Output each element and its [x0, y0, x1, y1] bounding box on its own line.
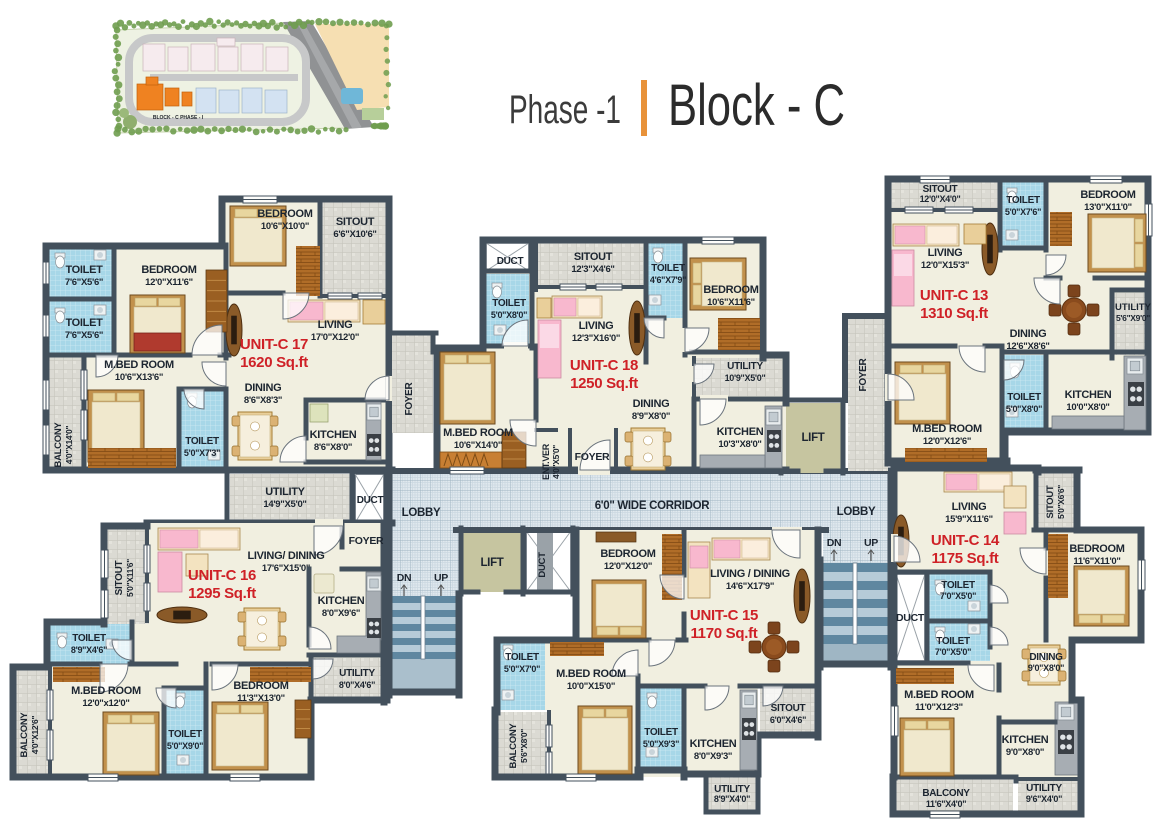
svg-text:M.BED ROOM: M.BED ROOM	[104, 359, 174, 371]
svg-text:11'3"X13'0": 11'3"X13'0"	[237, 693, 285, 704]
svg-text:M.BED ROOM: M.BED ROOM	[71, 685, 141, 697]
svg-text:DUCT: DUCT	[497, 256, 524, 267]
svg-text:8'0"X9'6": 8'0"X9'6"	[322, 608, 360, 619]
svg-text:5'6"X8'0": 5'6"X8'0"	[519, 729, 529, 763]
svg-text:4'6"X7'9": 4'6"X7'9"	[650, 275, 686, 285]
svg-text:8'9"X4'6": 8'9"X4'6"	[71, 645, 107, 655]
svg-text:8'6"X8'3": 8'6"X8'3"	[244, 395, 282, 406]
svg-text:4'0"X12'6": 4'0"X12'6"	[30, 716, 40, 755]
svg-text:LIVING/ DINING: LIVING/ DINING	[247, 550, 324, 562]
svg-text:TOILET: TOILET	[72, 633, 106, 644]
svg-text:12'3"X16'0": 12'3"X16'0"	[572, 333, 620, 344]
svg-text:14'6"X17'9": 14'6"X17'9"	[726, 581, 774, 592]
svg-text:4'0"X5'0": 4'0"X5'0"	[551, 445, 561, 479]
svg-text:9'0"X8'0": 9'0"X8'0"	[1028, 663, 1064, 673]
svg-text:M.BED ROOM: M.BED ROOM	[556, 668, 626, 680]
svg-text:7'0"X5'0": 7'0"X5'0"	[935, 647, 971, 657]
svg-text:UTILITY: UTILITY	[727, 361, 763, 372]
svg-text:TOILET: TOILET	[492, 298, 526, 309]
svg-text:7'6"X5'6": 7'6"X5'6"	[65, 330, 103, 341]
svg-text:DINING: DINING	[633, 398, 670, 410]
svg-text:SITOUT: SITOUT	[574, 251, 613, 263]
svg-text:LOBBY: LOBBY	[837, 506, 876, 518]
svg-text:BLOCK - C PHASE - I: BLOCK - C PHASE - I	[153, 115, 204, 121]
svg-text:UTILITY: UTILITY	[1115, 302, 1152, 313]
svg-text:BALCONY: BALCONY	[53, 422, 64, 468]
svg-text:UTILITY: UTILITY	[1026, 783, 1062, 794]
svg-text:8'0"X4'6": 8'0"X4'6"	[339, 680, 375, 690]
svg-text:LIFT: LIFT	[801, 432, 824, 444]
svg-text:15'9"X11'6": 15'9"X11'6"	[945, 514, 993, 525]
svg-text:1170 Sq.ft: 1170 Sq.ft	[690, 625, 757, 642]
svg-text:UNIT-C 15: UNIT-C 15	[690, 607, 758, 624]
svg-text:5'0"X8'0": 5'0"X8'0"	[1006, 404, 1042, 414]
svg-text:TOILET: TOILET	[651, 263, 685, 274]
svg-text:SITOUT: SITOUT	[336, 216, 375, 228]
svg-text:12'0"X12'0": 12'0"X12'0"	[604, 561, 652, 572]
svg-text:FOYER: FOYER	[858, 357, 869, 391]
svg-text:6'0"X4'6": 6'0"X4'6"	[770, 715, 806, 725]
svg-text:7'6"X5'6": 7'6"X5'6"	[65, 277, 103, 288]
svg-text:12'6"X8'6": 12'6"X8'6"	[1006, 341, 1049, 352]
svg-text:13'0"X11'0": 13'0"X11'0"	[1084, 202, 1132, 213]
svg-text:12'0"X4'0": 12'0"X4'0"	[920, 194, 961, 204]
svg-text:8'6"X8'0": 8'6"X8'0"	[314, 442, 352, 453]
svg-text:BEDROOM: BEDROOM	[1080, 189, 1135, 201]
svg-text:11'6"X4'0": 11'6"X4'0"	[926, 799, 966, 809]
svg-text:BALCONY: BALCONY	[922, 788, 970, 799]
svg-text:1250 Sq.ft: 1250 Sq.ft	[570, 375, 638, 392]
svg-text:BALCONY: BALCONY	[19, 712, 30, 758]
svg-text:10'3"X8'0": 10'3"X8'0"	[718, 439, 761, 450]
svg-text:LIVING: LIVING	[318, 319, 353, 331]
svg-text:TOILET: TOILET	[1006, 195, 1040, 206]
svg-text:11'6"X11'0": 11'6"X11'0"	[1073, 556, 1120, 567]
svg-text:5'0"X9'0": 5'0"X9'0"	[167, 741, 203, 751]
svg-text:UTILITY: UTILITY	[265, 486, 305, 498]
svg-text:5'0"X7'6": 5'0"X7'6"	[1005, 207, 1041, 217]
svg-text:UP: UP	[434, 572, 448, 584]
svg-text:BEDROOM: BEDROOM	[233, 680, 288, 692]
svg-text:BEDROOM: BEDROOM	[703, 284, 758, 296]
svg-text:TOILET: TOILET	[185, 436, 219, 447]
svg-text:BEDROOM: BEDROOM	[600, 548, 655, 560]
svg-text:11'0"X12'3": 11'0"X12'3"	[915, 702, 963, 713]
svg-text:UNIT-C 16: UNIT-C 16	[188, 567, 256, 584]
svg-text:UTILITY: UTILITY	[339, 668, 375, 679]
svg-text:KITCHEN: KITCHEN	[310, 429, 357, 441]
svg-text:5'0"X8'0": 5'0"X8'0"	[491, 310, 527, 320]
svg-text:10'0"X8'0": 10'0"X8'0"	[1066, 402, 1109, 413]
svg-text:10'6"X10'0": 10'6"X10'0"	[261, 221, 309, 232]
svg-text:Block - C: Block - C	[668, 73, 845, 138]
svg-text:ENT.VER: ENT.VER	[541, 443, 551, 480]
svg-text:UNIT-C 13: UNIT-C 13	[920, 287, 988, 304]
svg-text:5'0"X6'6": 5'0"X6'6"	[1056, 485, 1066, 519]
svg-text:TOILET: TOILET	[65, 264, 103, 276]
svg-text:UNIT-C 17: UNIT-C 17	[240, 336, 308, 353]
svg-text:KITCHEN: KITCHEN	[690, 738, 737, 750]
svg-text:DINING: DINING	[1010, 328, 1047, 340]
svg-text:12'0"X11'6": 12'0"X11'6"	[145, 277, 193, 288]
svg-text:KITCHEN: KITCHEN	[1002, 734, 1049, 746]
svg-text:12'0"X12'6": 12'0"X12'6"	[923, 436, 971, 447]
svg-text:1620 Sq.ft: 1620 Sq.ft	[240, 354, 308, 371]
svg-text:10'9"X5'0": 10'9"X5'0"	[725, 373, 766, 383]
svg-text:12'3"X4'6": 12'3"X4'6"	[571, 264, 614, 275]
svg-text:8'9"X8'0": 8'9"X8'0"	[632, 411, 670, 422]
svg-text:5'6"X9'0": 5'6"X9'0"	[1116, 313, 1150, 323]
svg-text:10'6"X11'6": 10'6"X11'6"	[707, 297, 755, 308]
svg-text:1175 Sq.ft: 1175 Sq.ft	[931, 550, 998, 567]
svg-text:TOILET: TOILET	[941, 580, 975, 591]
svg-text:M.BED ROOM: M.BED ROOM	[912, 423, 982, 435]
svg-text:6'0" WIDE CORRIDOR: 6'0" WIDE CORRIDOR	[595, 500, 711, 512]
svg-text:DINING: DINING	[245, 382, 282, 394]
svg-text:FOYER: FOYER	[404, 381, 415, 415]
svg-text:UNIT-C 18: UNIT-C 18	[570, 357, 638, 374]
svg-text:UP: UP	[864, 537, 878, 549]
svg-text:LIFT: LIFT	[480, 557, 503, 569]
svg-text:17'0"X12'0": 17'0"X12'0"	[311, 332, 359, 343]
svg-text:10'0"X15'0": 10'0"X15'0"	[567, 681, 615, 692]
svg-text:KITCHEN: KITCHEN	[318, 595, 365, 607]
svg-text:KITCHEN: KITCHEN	[1065, 389, 1112, 401]
svg-text:DN: DN	[827, 537, 842, 549]
svg-text:5'0"X7'0": 5'0"X7'0"	[504, 664, 540, 674]
svg-text:M.BED ROOM: M.BED ROOM	[443, 427, 513, 439]
svg-text:8'9"X4'0": 8'9"X4'0"	[714, 794, 750, 804]
svg-text:LIVING: LIVING	[952, 501, 987, 513]
svg-text:DN: DN	[397, 572, 412, 584]
svg-text:TOILET: TOILET	[1007, 392, 1041, 403]
svg-text:KITCHEN: KITCHEN	[717, 426, 764, 438]
svg-text:BEDROOM: BEDROOM	[1069, 543, 1124, 555]
svg-text:DUCT: DUCT	[537, 552, 548, 578]
svg-text:17'6"X15'0": 17'6"X15'0"	[262, 563, 310, 574]
svg-text:BEDROOM: BEDROOM	[141, 264, 196, 276]
svg-text:9'0"X8'0": 9'0"X8'0"	[1006, 747, 1044, 758]
svg-text:4'0"X14'0": 4'0"X14'0"	[64, 426, 74, 465]
svg-text:LOBBY: LOBBY	[402, 507, 441, 519]
svg-text:TOILET: TOILET	[505, 652, 539, 663]
svg-text:TOILET: TOILET	[936, 636, 970, 647]
svg-text:BALCONY: BALCONY	[508, 723, 519, 769]
svg-text:14'9"X5'0": 14'9"X5'0"	[263, 499, 306, 510]
svg-text:5'0"X9'3": 5'0"X9'3"	[643, 739, 679, 749]
svg-text:TOILET: TOILET	[644, 727, 678, 738]
svg-text:DUCT: DUCT	[357, 495, 384, 506]
svg-text:10'6"X14'0": 10'6"X14'0"	[454, 440, 502, 451]
svg-text:DINING: DINING	[1029, 652, 1063, 663]
svg-text:BEDROOM: BEDROOM	[257, 208, 312, 220]
svg-text:1295 Sq.ft: 1295 Sq.ft	[188, 585, 256, 602]
svg-text:SITOUT: SITOUT	[771, 703, 806, 714]
svg-text:8'0"X9'3": 8'0"X9'3"	[694, 751, 732, 762]
svg-text:SITOUT: SITOUT	[114, 560, 125, 595]
svg-text:FOYER: FOYER	[575, 451, 610, 463]
svg-text:1310 Sq.ft: 1310 Sq.ft	[920, 305, 988, 322]
svg-text:Phase -1: Phase -1	[509, 88, 621, 132]
svg-text:DUCT: DUCT	[896, 612, 925, 624]
svg-text:TOILET: TOILET	[168, 729, 202, 740]
svg-text:12'0"X15'3": 12'0"X15'3"	[921, 260, 969, 271]
svg-text:UNIT-C 14: UNIT-C 14	[931, 532, 1000, 549]
svg-text:7'0"X5'0": 7'0"X5'0"	[940, 591, 976, 601]
svg-text:LIVING: LIVING	[928, 247, 963, 259]
svg-text:12'0"x12'0": 12'0"x12'0"	[82, 698, 129, 709]
svg-text:M.BED ROOM: M.BED ROOM	[904, 689, 974, 701]
svg-text:9'6"X4'0": 9'6"X4'0"	[1026, 794, 1062, 804]
svg-text:5'0"X11'6": 5'0"X11'6"	[125, 559, 135, 597]
svg-text:LIVING: LIVING	[579, 320, 614, 332]
svg-text:LIVING / DINING: LIVING / DINING	[710, 568, 790, 580]
svg-text:TOILET: TOILET	[65, 317, 103, 329]
svg-text:SITOUT: SITOUT	[1045, 485, 1056, 518]
svg-text:10'6"X13'6": 10'6"X13'6"	[115, 372, 163, 383]
svg-text:6'6"X10'6": 6'6"X10'6"	[333, 229, 376, 240]
svg-text:5'0"X7'3": 5'0"X7'3"	[184, 448, 220, 458]
svg-text:FOYER: FOYER	[349, 535, 384, 547]
